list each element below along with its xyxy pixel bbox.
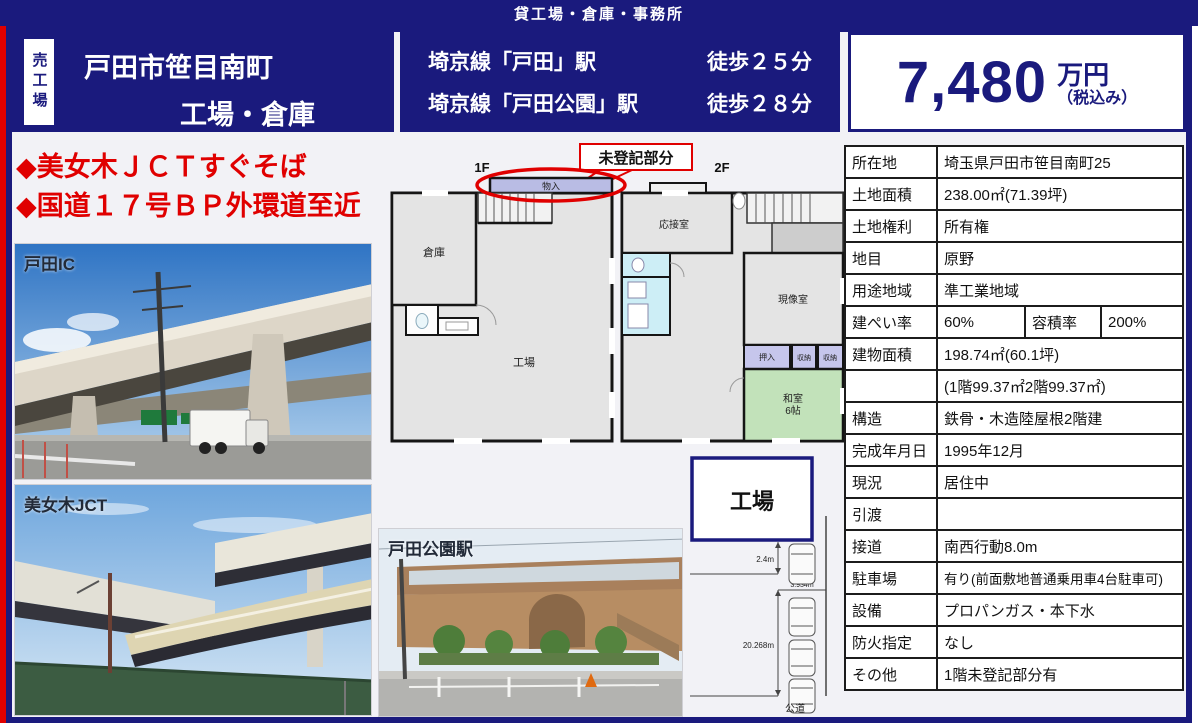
row-label: 完成年月日 bbox=[845, 434, 937, 466]
table-row: 構造鉄骨・木造陸屋根2階建 bbox=[845, 402, 1183, 434]
room-shuno2: 収納 bbox=[823, 353, 837, 362]
row-label: 設備 bbox=[845, 594, 937, 626]
headline-1: ◆美女木ＪＣＴすぐそば bbox=[16, 148, 388, 187]
photo-bijogi-jct: 美女木JCT bbox=[14, 484, 372, 716]
table-row: 土地権利所有権 bbox=[845, 210, 1183, 242]
row-value: 準工業地域 bbox=[937, 274, 1183, 306]
price-tax-note: （税込み） bbox=[1057, 90, 1137, 108]
row-value: 1995年12月 bbox=[937, 434, 1183, 466]
row-label bbox=[845, 370, 937, 402]
table-row: 現況居住中 bbox=[845, 466, 1183, 498]
floor1-label: 1F bbox=[474, 160, 489, 175]
row-value: なし bbox=[937, 626, 1183, 658]
photo-label-toda-ic: 戸田IC bbox=[24, 250, 75, 275]
row-value: 60% bbox=[937, 306, 1025, 338]
table-row: 用途地域準工業地域 bbox=[845, 274, 1183, 306]
photo-label-bijogi-jct: 美女木JCT bbox=[24, 491, 107, 516]
price-block: 7,480 万円 （税込み） bbox=[848, 32, 1186, 132]
row-label: 容積率 bbox=[1025, 306, 1101, 338]
bijogi-jct-image bbox=[15, 485, 372, 716]
row-label: 用途地域 bbox=[845, 274, 937, 306]
table-row: 設備プロパンガス・本下水 bbox=[845, 594, 1183, 626]
row-label: 防火指定 bbox=[845, 626, 937, 658]
site-diagram: 工場 2.4m 3.934m 20.268m 公道 bbox=[690, 456, 845, 716]
row-value: 1階未登記部分有 bbox=[937, 658, 1183, 690]
sale-tag: 売工場 bbox=[24, 39, 54, 125]
table-row: 土地面積238.00㎡(71.39坪) bbox=[845, 178, 1183, 210]
row-label: 建ぺい率 bbox=[845, 306, 937, 338]
row-label: 地目 bbox=[845, 242, 937, 274]
room-shuno1: 収納 bbox=[797, 353, 811, 362]
unregistered-annotation-text: 未登記部分 bbox=[597, 149, 673, 167]
headlines: ◆美女木ＪＣＴすぐそば ◆国道１７号ＢＰ外環道至近 bbox=[16, 148, 388, 226]
dim-depth: 20.268m bbox=[743, 641, 774, 650]
row-value: 鉄骨・木造陸屋根2階建 bbox=[937, 402, 1183, 434]
title-block: 売工場 戸田市笹目南町 工場・倉庫 bbox=[12, 32, 394, 132]
row-value: 198.74㎡(60.1坪) bbox=[937, 338, 1183, 370]
table-row: 引渡 bbox=[845, 498, 1183, 530]
table-row: (1階99.37㎡2階99.37㎡) bbox=[845, 370, 1183, 402]
dim-side: 2.4m bbox=[756, 555, 774, 564]
site-building-label: 工場 bbox=[730, 489, 774, 514]
row-label: 建物面積 bbox=[845, 338, 937, 370]
row-label: その他 bbox=[845, 658, 937, 690]
station-info: 埼京線「戸田」駅 徒歩２５分 埼京線「戸田公園」駅 徒歩２８分 bbox=[400, 32, 840, 132]
table-row: 地目原野 bbox=[845, 242, 1183, 274]
row-label: 駐車場 bbox=[845, 562, 937, 594]
row-value: プロパンガス・本下水 bbox=[937, 594, 1183, 626]
top-banner-text: 貸工場・倉庫・事務所 bbox=[514, 3, 684, 24]
floor2-label: 2F bbox=[714, 160, 729, 175]
table-row: 駐車場有り(前面敷地普通乗用車4台駐車可) bbox=[845, 562, 1183, 594]
flyer-frame: 売工場 戸田市笹目南町 工場・倉庫 埼京線「戸田」駅 徒歩２５分 埼京線「戸田公… bbox=[6, 26, 1192, 723]
row-value: 所有権 bbox=[937, 210, 1183, 242]
top-banner: 貸工場・倉庫・事務所 bbox=[0, 0, 1198, 26]
station-row: 埼京線「戸田公園」駅 徒歩２８分 bbox=[428, 88, 812, 118]
station-walk: 徒歩２５分 bbox=[707, 46, 812, 76]
station-line: 埼京線「戸田公園」駅 bbox=[428, 88, 638, 118]
row-label: 現況 bbox=[845, 466, 937, 498]
table-row: 完成年月日1995年12月 bbox=[845, 434, 1183, 466]
floorplan-2f: 応接室 現像室 押入 収納 収納 和室 6帖 bbox=[622, 183, 845, 444]
station-line: 埼京線「戸田」駅 bbox=[428, 46, 596, 76]
table-row: その他1階未登記部分有 bbox=[845, 658, 1183, 690]
table-row: 建物面積198.74㎡(60.1坪) bbox=[845, 338, 1183, 370]
details-table: 所在地埼玉県戸田市笹目南町25 土地面積238.00㎡(71.39坪) 土地権利… bbox=[844, 145, 1184, 691]
price-unit: 万円 bbox=[1057, 61, 1137, 90]
photo-label-toda-koen: 戸田公園駅 bbox=[388, 535, 473, 560]
floorplan-drawing: 未登記部分 1F 2F 物入 倉庫 工場 bbox=[390, 142, 845, 452]
room-kojo: 工場 bbox=[513, 356, 535, 369]
station-row: 埼京線「戸田」駅 徒歩２５分 bbox=[428, 46, 812, 76]
row-value bbox=[937, 498, 1183, 530]
room-genzo: 現像室 bbox=[778, 293, 808, 306]
row-label: 引渡 bbox=[845, 498, 937, 530]
row-label: 接道 bbox=[845, 530, 937, 562]
row-value: 238.00㎡(71.39坪) bbox=[937, 178, 1183, 210]
row-value: 200% bbox=[1101, 306, 1183, 338]
row-value: 有り(前面敷地普通乗用車4台駐車可) bbox=[937, 562, 1183, 594]
parked-cars bbox=[789, 544, 815, 713]
room-oshiire: 押入 bbox=[759, 352, 775, 362]
room-soko: 倉庫 bbox=[423, 245, 445, 259]
sale-tag-text: 売工場 bbox=[29, 52, 50, 112]
toda-ic-image bbox=[15, 244, 372, 480]
table-row: 防火指定なし bbox=[845, 626, 1183, 658]
row-label: 所在地 bbox=[845, 146, 937, 178]
table-row: 接道南西行動8.0m bbox=[845, 530, 1183, 562]
row-value: 埼玉県戸田市笹目南町25 bbox=[937, 146, 1183, 178]
title-line1: 戸田市笹目南町 bbox=[84, 46, 384, 85]
room-washitsu: 和室 bbox=[783, 392, 803, 405]
room-monoire: 物入 bbox=[542, 181, 560, 192]
table-row: 所在地埼玉県戸田市笹目南町25 bbox=[845, 146, 1183, 178]
row-label: 土地権利 bbox=[845, 210, 937, 242]
headline-2: ◆国道１７号ＢＰ外環道至近 bbox=[16, 187, 388, 226]
photo-toda-ic: 戸田IC bbox=[14, 243, 372, 480]
row-value: 原野 bbox=[937, 242, 1183, 274]
row-value: (1階99.37㎡2階99.37㎡) bbox=[937, 370, 1183, 402]
station-walk: 徒歩２８分 bbox=[707, 88, 812, 118]
photo-toda-koen-station: 戸田公園駅 bbox=[378, 528, 683, 717]
row-value: 居住中 bbox=[937, 466, 1183, 498]
floorplan-1f: 物入 倉庫 工場 bbox=[392, 178, 615, 444]
page-title: 戸田市笹目南町 工場・倉庫 bbox=[84, 46, 384, 132]
price-amount: 7,480 bbox=[897, 49, 1047, 116]
row-label: 構造 bbox=[845, 402, 937, 434]
room-osetsu: 応接室 bbox=[659, 218, 689, 231]
row-value: 南西行動8.0m bbox=[937, 530, 1183, 562]
row-label: 土地面積 bbox=[845, 178, 937, 210]
table-row-ratios: 建ぺい率 60% 容積率 200% bbox=[845, 306, 1183, 338]
road-label: 公道 bbox=[785, 702, 805, 715]
room-washitsu-size: 6帖 bbox=[785, 404, 801, 417]
title-line2: 工場・倉庫 bbox=[84, 93, 384, 132]
